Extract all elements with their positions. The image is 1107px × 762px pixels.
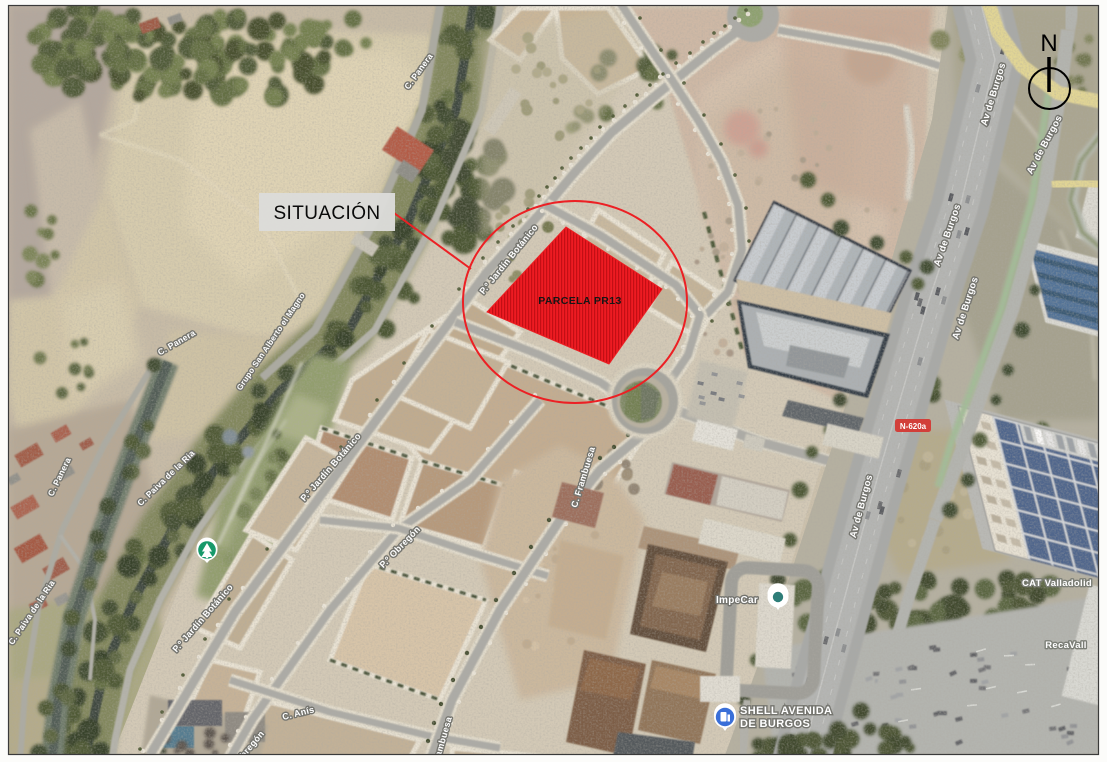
svg-text:DE BURGOS: DE BURGOS xyxy=(740,718,810,730)
svg-text:SITUACIÓN: SITUACIÓN xyxy=(273,202,380,224)
svg-text:SHELL AVENIDA: SHELL AVENIDA xyxy=(740,705,832,717)
svg-text:ImpeCar: ImpeCar xyxy=(716,595,758,606)
svg-text:N: N xyxy=(1040,30,1057,57)
svg-text:N-620a: N-620a xyxy=(900,422,927,431)
svg-text:RecaVall: RecaVall xyxy=(1045,640,1087,651)
svg-text:CAT Valladolid: CAT Valladolid xyxy=(1022,578,1092,589)
svg-text:PARCELA PR13: PARCELA PR13 xyxy=(538,295,622,307)
